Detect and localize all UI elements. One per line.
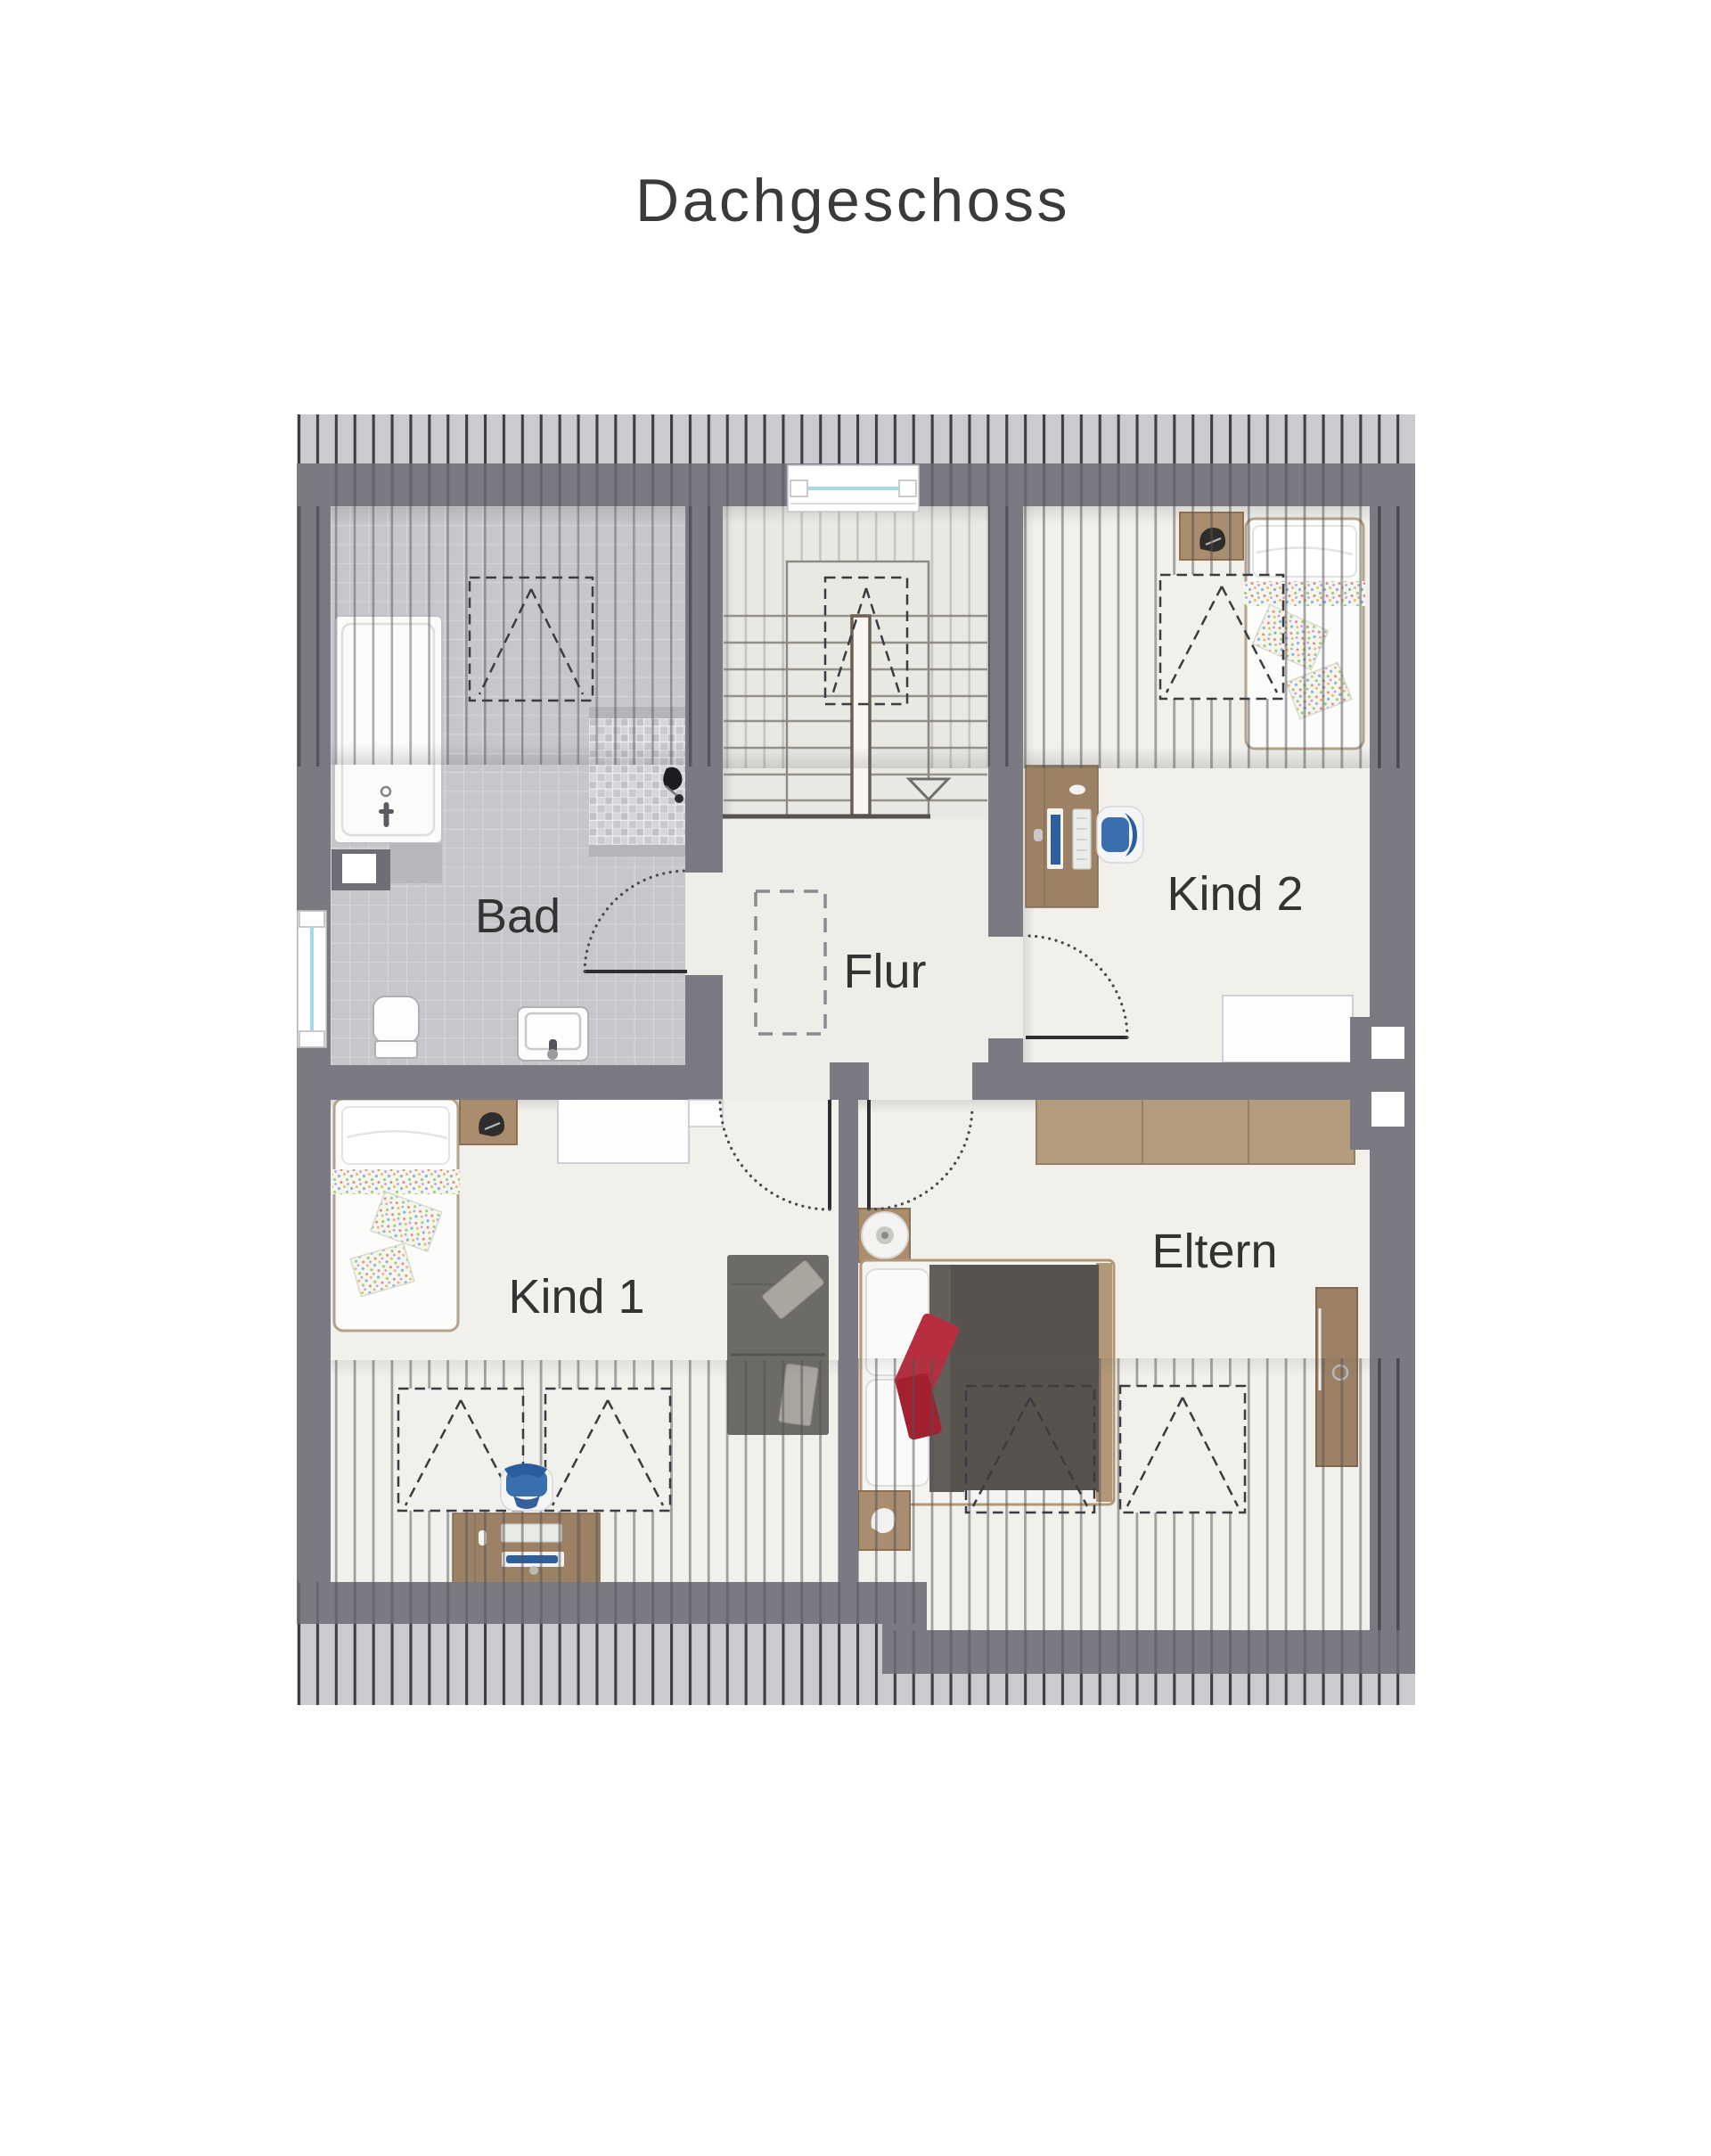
svg-text:Flur: Flur	[844, 945, 927, 998]
svg-text:Kind 2: Kind 2	[1167, 867, 1303, 921]
svg-text:Dachgeschoss: Dachgeschoss	[635, 167, 1070, 234]
svg-text:Kind 1: Kind 1	[508, 1270, 644, 1324]
svg-text:Bad: Bad	[475, 889, 561, 943]
svg-text:Eltern: Eltern	[1151, 1225, 1277, 1278]
